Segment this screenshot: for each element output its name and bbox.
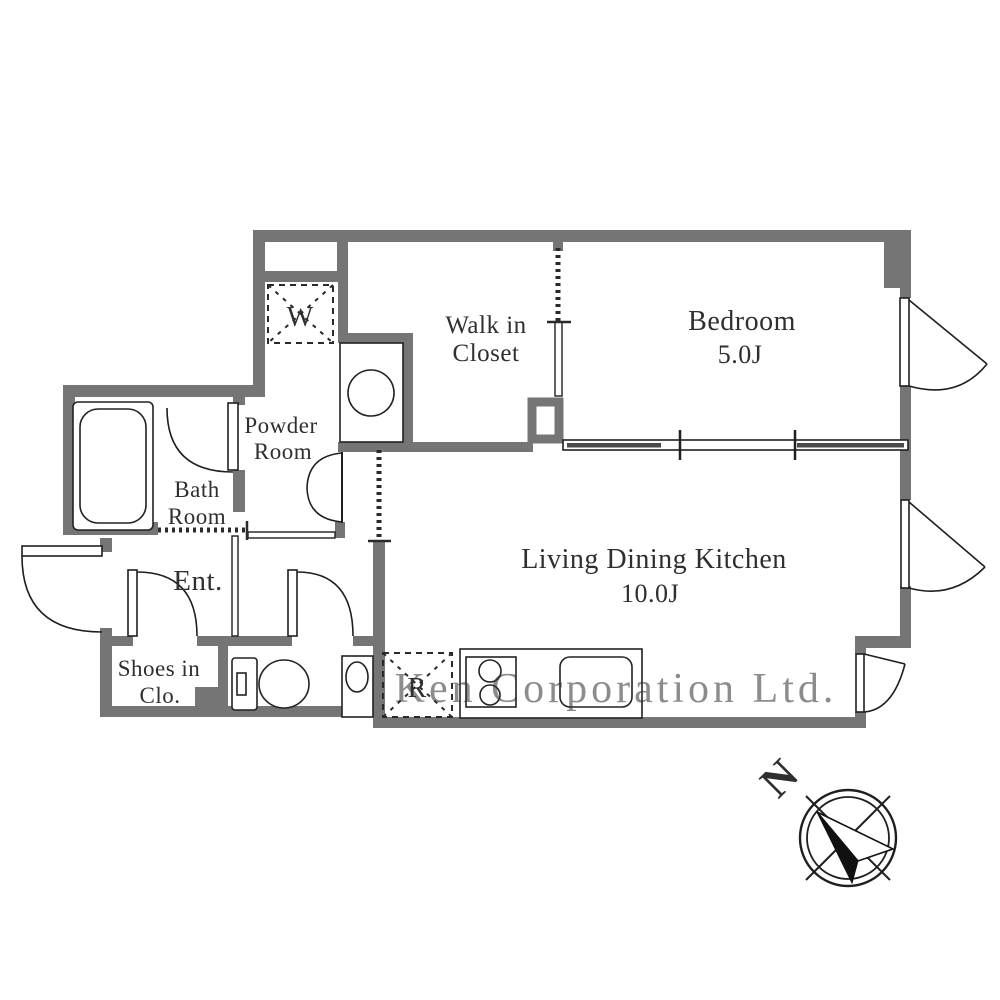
washbasin-vanity [340, 343, 403, 442]
wall-toilet-shoes-divider [218, 643, 228, 706]
ldk-label: Living Dining Kitchen [521, 544, 787, 575]
wall-top [255, 230, 911, 242]
washing-machine-symbol: W [287, 302, 314, 333]
bedroom-label: Bedroom [688, 306, 796, 337]
wall-right-lower-a [855, 648, 866, 654]
entrance-label: Ent. [173, 565, 223, 597]
wall-hall-south-a [100, 636, 133, 646]
ldk-window-lower-swing [864, 654, 905, 712]
compass: N [751, 750, 896, 886]
wic-label-line2: Closet [453, 340, 520, 367]
toilet-door-leaf [288, 570, 297, 636]
floor-plan: Bedroom 5.0J Walk in Closet Living Dinin… [0, 0, 1000, 1000]
powder-label-line1: Powder [244, 413, 317, 438]
bathtub-inner [80, 409, 146, 523]
wall-wic-bottom [403, 442, 533, 452]
toilet-tank-detail [237, 673, 246, 695]
wall-step-right [855, 636, 911, 648]
wall-hall-south-c [353, 636, 375, 646]
hand-wash-bowl [346, 662, 368, 692]
bedroom-size: 5.0J [718, 340, 763, 369]
ldk-window-upper-leaf [901, 500, 909, 588]
wall-vanity-bottom [338, 442, 413, 452]
washbasin-bowl [348, 370, 394, 416]
front-door-leaf [22, 546, 102, 556]
bath-label-line2: Room [168, 504, 226, 529]
sliding-door-panel-left [567, 443, 661, 448]
wall-powder-left [253, 230, 265, 397]
wall-shoes-left [100, 642, 112, 706]
wall-right-bedroom-upper [900, 242, 911, 298]
bathtub [73, 402, 153, 530]
powder-folding-door-upper [307, 453, 342, 488]
bedroom-sliding-door [563, 430, 908, 460]
wall-hall-south-b [197, 636, 292, 646]
shoes-label-line1: Shoes in [118, 656, 201, 681]
compass-north-label: N [751, 750, 808, 807]
bedroom-window-swing [909, 300, 987, 390]
bath-door-swing [167, 408, 233, 472]
wall-pillar-wic [532, 402, 559, 439]
shoes-door-leaf [128, 570, 137, 636]
floor-plan-drawing: Bedroom 5.0J Walk in Closet Living Dinin… [0, 0, 1000, 1000]
hand-wash-basin [342, 656, 373, 717]
bath-label-line1: Bath [174, 477, 219, 502]
toilet-bowl [259, 660, 309, 708]
ldk-window-upper-swing [909, 502, 985, 591]
wall-hall-ldk [373, 540, 385, 728]
compass-needle-white-fin [817, 812, 893, 861]
wall-alcove-bottom [253, 271, 347, 282]
front-door-swing [22, 556, 102, 632]
shoes-label-line2: Clo. [140, 683, 181, 708]
wic-bedroom-thin-wall [555, 322, 562, 396]
windows [856, 298, 987, 712]
wall-bath-divider-lower [233, 470, 245, 512]
wall-vanity-right [403, 343, 413, 452]
entrance-step-edge [232, 536, 238, 636]
powder-label-line2: Room [254, 439, 312, 464]
wall-wic-left [338, 233, 348, 343]
wall-block-hall [335, 522, 345, 538]
wic-label-line1: Walk in [445, 312, 526, 339]
powder-hall-edge [248, 532, 335, 538]
bedroom-window-leaf [900, 298, 909, 386]
toilet [232, 658, 309, 710]
bath-door-leaf [228, 403, 238, 470]
wall-vanity-top [338, 333, 413, 343]
watermark: Ken Corporation Ltd. [395, 666, 838, 712]
toilet-door-swing [297, 572, 353, 636]
powder-folding-door-lower [307, 488, 342, 522]
ldk-size: 10.0J [621, 579, 679, 608]
ldk-window-lower-leaf [856, 654, 864, 712]
wall-bath-top [63, 385, 255, 397]
sliding-door-panel-right [797, 443, 904, 448]
